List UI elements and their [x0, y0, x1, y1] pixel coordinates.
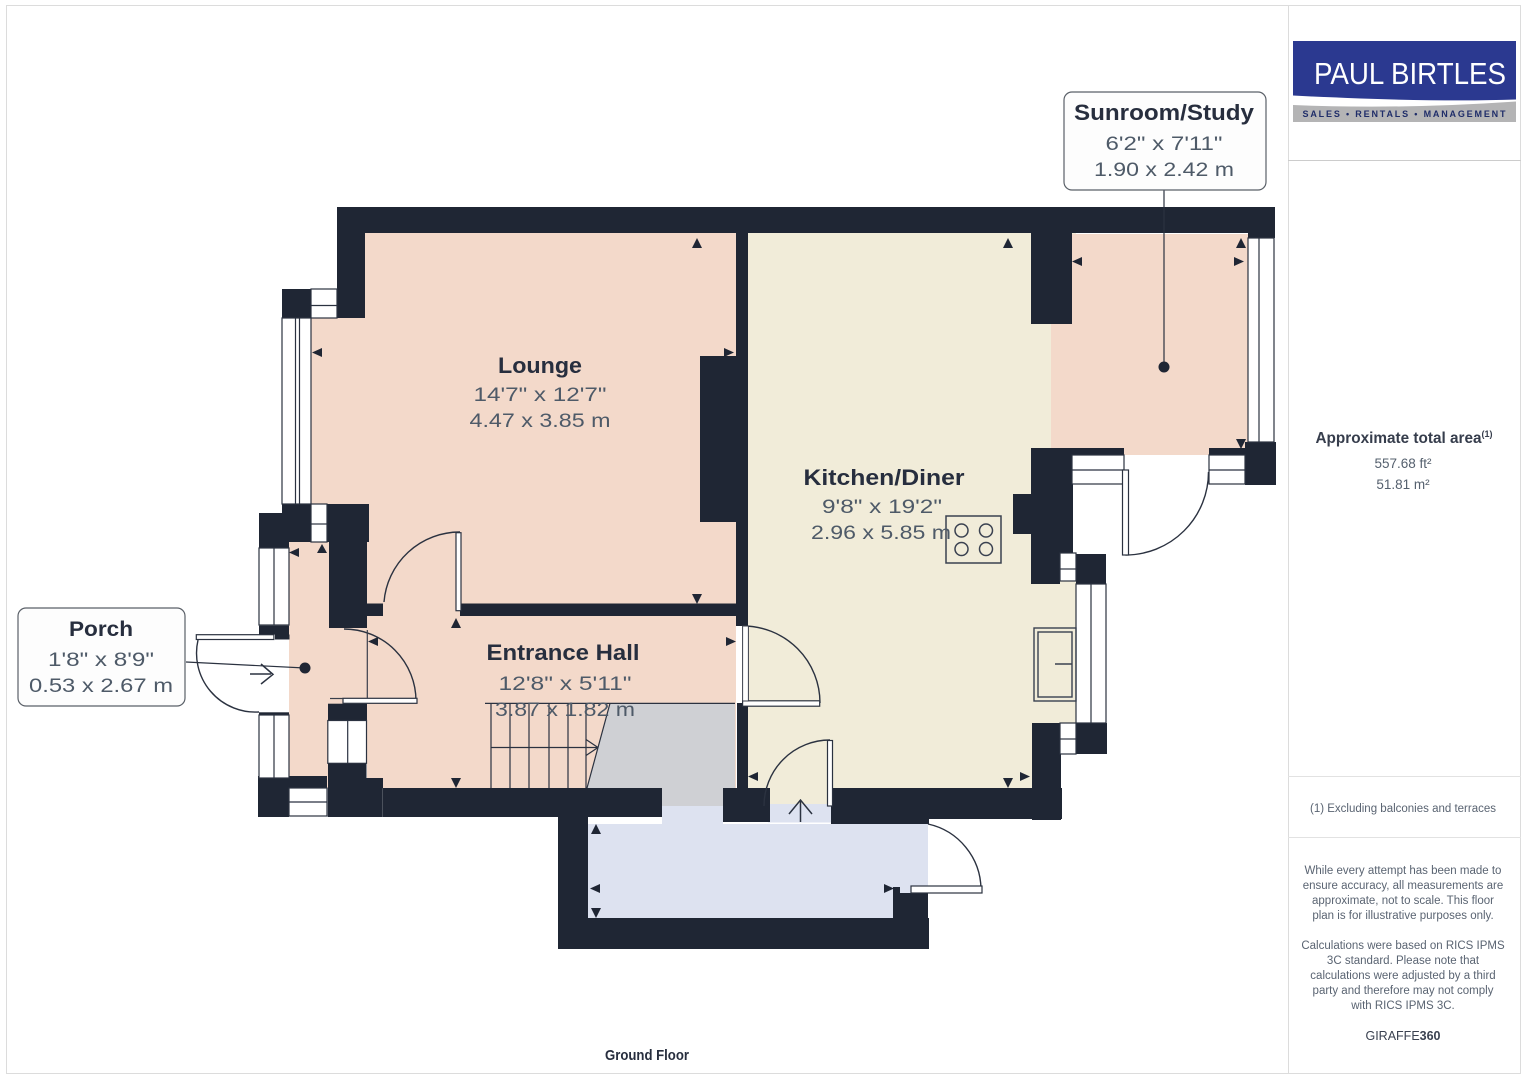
svg-text:SALES • RENTALS • MANAGEMENT: SALES • RENTALS • MANAGEMENT [1303, 109, 1507, 119]
svg-text:PAUL BIRTLES: PAUL BIRTLES [1314, 56, 1506, 91]
svg-text:3.87 x 1.82 m: 3.87 x 1.82 m [495, 700, 635, 721]
svg-text:14'7" x 12'7": 14'7" x 12'7" [474, 385, 607, 406]
svg-text:Lounge: Lounge [498, 353, 582, 378]
svg-text:Entrance Hall: Entrance Hall [487, 640, 640, 665]
svg-text:ensure accuracy, all measureme: ensure accuracy, all measurements are [1303, 880, 1504, 892]
svg-text:GIRAFFE360: GIRAFFE360 [1365, 1029, 1440, 1043]
svg-text:12'8" x 5'11": 12'8" x 5'11" [499, 674, 632, 695]
svg-text:Porch: Porch [69, 618, 133, 641]
svg-text:(1) Excluding balconies and te: (1) Excluding balconies and terraces [1310, 803, 1496, 815]
svg-text:calculations were adjusted by: calculations were adjusted by a third [1310, 970, 1495, 982]
svg-text:2.96 x 5.85 m: 2.96 x 5.85 m [811, 523, 951, 544]
svg-text:plan is for illustrative purpo: plan is for illustrative purposes only. [1312, 910, 1493, 922]
svg-text:0.53 x 2.67 m: 0.53 x 2.67 m [29, 676, 173, 697]
svg-text:3C standard. Please note that: 3C standard. Please note that [1327, 955, 1480, 967]
svg-text:51.81 m²: 51.81 m² [1376, 477, 1430, 492]
svg-text:9'8" x 19'2": 9'8" x 19'2" [822, 497, 942, 518]
svg-text:Approximate total area(1): Approximate total area(1) [1316, 429, 1493, 447]
svg-text:Sunroom/Study: Sunroom/Study [1074, 100, 1255, 125]
svg-text:6'2" x 7'11": 6'2" x 7'11" [1106, 134, 1223, 155]
svg-text:with RICS IPMS 3C.: with RICS IPMS 3C. [1350, 1000, 1455, 1012]
svg-text:party and therefore may not co: party and therefore may not comply [1313, 985, 1494, 997]
svg-text:Calculations were based on RIC: Calculations were based on RICS IPMS [1301, 940, 1505, 952]
svg-text:While every attempt has been m: While every attempt has been made to [1305, 865, 1502, 877]
svg-text:approximate, not to scale. Thi: approximate, not to scale. This floor [1312, 895, 1494, 907]
svg-text:1.90 x 2.42 m: 1.90 x 2.42 m [1094, 160, 1234, 181]
svg-text:Ground Floor: Ground Floor [605, 1047, 689, 1064]
svg-text:Kitchen/Diner: Kitchen/Diner [804, 465, 965, 490]
svg-text:557.68 ft²: 557.68 ft² [1374, 456, 1432, 471]
svg-text:1'8" x 8'9": 1'8" x 8'9" [48, 650, 154, 671]
svg-text:4.47 x 3.85 m: 4.47 x 3.85 m [470, 411, 611, 432]
